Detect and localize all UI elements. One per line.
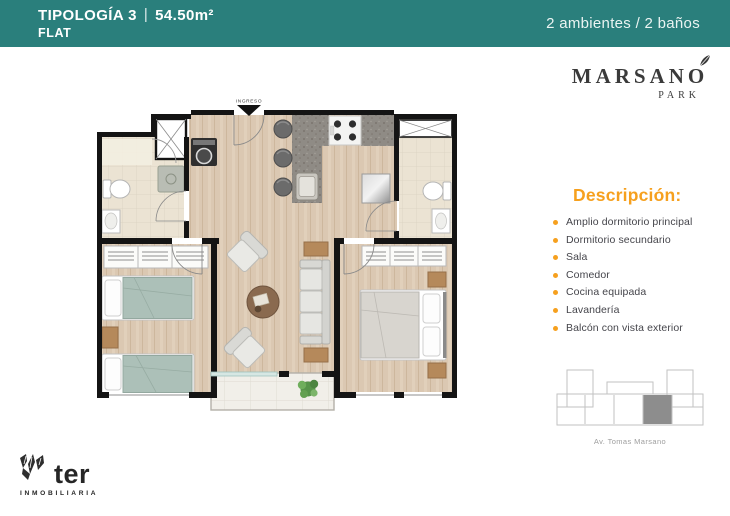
list-item: Amplio dormitorio principal — [553, 216, 718, 228]
pillow — [423, 327, 440, 356]
header-bar: TIPOLOGÍA 3 | 54.50m² FLAT 2 ambientes /… — [0, 0, 730, 47]
list-item: Comedor — [553, 269, 718, 281]
description-heading: Descripción: — [573, 185, 718, 206]
developer-name: ter — [54, 463, 90, 486]
typology-subtitle: FLAT — [38, 26, 214, 40]
developer-logo: ter INMOBILIARIA — [18, 452, 128, 497]
balcony-plant — [298, 380, 318, 398]
floor-plan: INGRESO — [94, 96, 464, 414]
list-item: Sala — [553, 251, 718, 263]
nightstand — [102, 327, 118, 348]
typology-title: TIPOLOGÍA 3 — [38, 7, 137, 24]
key-plan: Av. Tomas Marsano — [555, 367, 705, 446]
bullet-icon — [553, 220, 558, 225]
list-item: Cocina equipada — [553, 286, 718, 298]
area-value: 54.50m² — [155, 7, 214, 24]
shower-area — [102, 139, 152, 165]
brand-name: MARSANO — [572, 64, 709, 89]
pillow — [423, 294, 440, 323]
sliding-glass-door — [211, 372, 277, 376]
bullet-icon — [553, 273, 558, 278]
list-item: Lavandería — [553, 304, 718, 316]
headboard — [443, 292, 447, 358]
bullet-icon — [553, 290, 558, 295]
entrance-marker: INGRESO — [236, 99, 262, 117]
pillow — [105, 280, 121, 316]
pillow — [105, 358, 121, 390]
blanket — [123, 278, 192, 319]
description-section: Descripción: Amplio dormitorio principal… — [553, 185, 718, 339]
blanket — [123, 356, 192, 393]
brand-sub: PARK — [566, 90, 714, 101]
blanket — [361, 292, 419, 358]
developer-sub: INMOBILIARIA — [20, 490, 128, 497]
floor-plan-svg: INGRESO — [94, 96, 464, 414]
bullet-icon — [553, 308, 558, 313]
wardrobe — [104, 246, 208, 268]
highlighted-unit — [644, 395, 672, 424]
list-item: Dormitorio secundario — [553, 234, 718, 246]
building-main-band — [557, 394, 703, 425]
header-left: TIPOLOGÍA 3 | 54.50m² FLAT — [38, 7, 214, 41]
brand-logo: MARSANO PARK — [566, 64, 714, 101]
sofa — [300, 260, 322, 268]
side-table — [304, 242, 328, 256]
laundry-cabinet — [158, 166, 184, 192]
list-item: Balcón con vista exterior — [553, 322, 718, 334]
description-list: Amplio dormitorio principal Dormitorio s… — [553, 216, 718, 334]
nightstand — [428, 272, 446, 287]
page: TIPOLOGÍA 3 | 54.50m² FLAT 2 ambientes /… — [0, 0, 730, 516]
bullet-icon — [553, 326, 558, 331]
building-tower-left — [567, 370, 593, 407]
ter-mark-icon — [18, 452, 50, 486]
leaf-icon — [698, 54, 712, 68]
brand-name-text: MARSANO — [572, 64, 709, 88]
kitchen-counter — [292, 115, 329, 146]
toilet — [443, 182, 451, 200]
bullet-icon — [553, 255, 558, 260]
header-separator: | — [144, 6, 148, 23]
building-center-block — [607, 382, 653, 394]
entry-arrow-icon — [237, 105, 261, 116]
side-table — [304, 348, 328, 362]
bullet-icon — [553, 238, 558, 243]
key-plan-svg — [555, 367, 705, 429]
street-label: Av. Tomas Marsano — [555, 437, 705, 446]
rooms-baths-text: 2 ambientes / 2 baños — [546, 0, 700, 47]
fridge — [362, 174, 390, 203]
nightstand — [428, 363, 446, 378]
secondary-bedroom — [102, 246, 208, 394]
entry-label: INGRESO — [236, 99, 262, 105]
master-bedroom — [360, 246, 447, 378]
